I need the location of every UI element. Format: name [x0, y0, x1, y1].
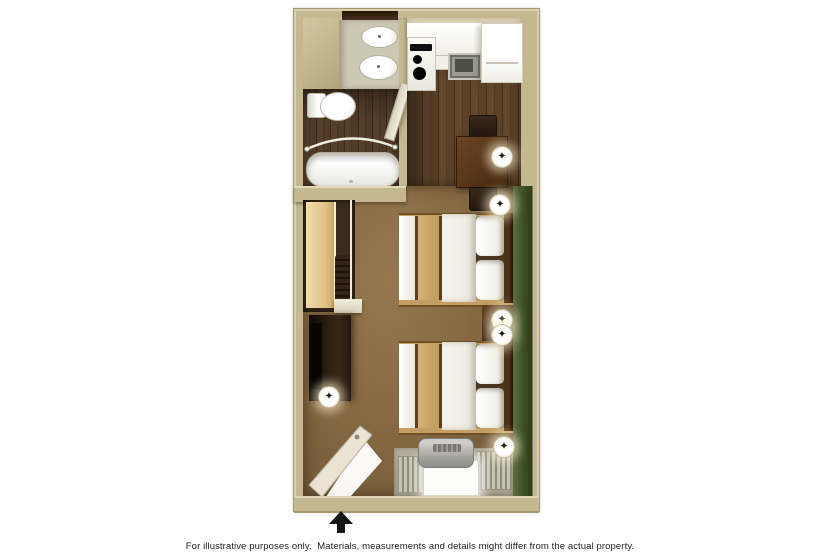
headboard [504, 341, 513, 431]
green-accent-wall [513, 186, 533, 497]
ceiling-light-icon: ✦ [318, 386, 340, 408]
shower-rod-icon [303, 125, 399, 155]
vanity-sink-icon [359, 55, 398, 80]
sink-basin [455, 59, 473, 72]
ptac-unit-icon [418, 438, 474, 468]
toilet-bowl-icon [320, 92, 356, 121]
vanity-sink-icon [361, 26, 398, 48]
stove-controls [410, 44, 432, 51]
pillow-icon [476, 344, 504, 384]
bed-2 [399, 341, 513, 431]
fridge-handle [486, 62, 518, 68]
headboard [504, 213, 513, 303]
closet-half-wall [334, 299, 362, 313]
dining-chair-icon [469, 115, 497, 138]
ceiling-light-icon: ✦ [489, 194, 511, 216]
disclaimer-text: For illustrative purposes only. Material… [0, 541, 820, 552]
interior-wall [399, 144, 407, 186]
light-glyph: ✦ [324, 391, 333, 402]
bed-1 [399, 213, 513, 303]
tub-drain-icon [349, 180, 353, 183]
folded-sheet [399, 216, 415, 300]
ceiling-light-icon: ✦ [493, 436, 515, 458]
closet-shelf [306, 202, 336, 308]
ptac-vent [433, 444, 461, 452]
faucet-icon [377, 65, 380, 68]
bed-blanket [418, 344, 439, 428]
entry-door-icon [302, 423, 394, 499]
light-glyph: ✦ [497, 329, 506, 340]
ceiling-light-icon: ✦ [491, 146, 513, 168]
stove-icon [407, 37, 436, 91]
light-glyph: ✦ [499, 441, 508, 452]
pillow-icon [476, 260, 504, 300]
pillow-icon [476, 388, 504, 428]
ceiling-light-icon: ✦ [491, 324, 513, 346]
kitchen-sink-icon [448, 53, 482, 80]
refrigerator-icon [481, 23, 523, 83]
pillows [476, 216, 504, 300]
bed-blanket [418, 216, 439, 300]
burner-icon [413, 67, 426, 80]
light-glyph: ✦ [497, 151, 506, 162]
faucet-icon [378, 35, 381, 38]
tv-icon [311, 323, 322, 389]
bed-duvet [442, 214, 476, 302]
interior-wall [399, 18, 407, 87]
folded-sheet [399, 344, 415, 428]
pillow-icon [476, 216, 504, 256]
bed-duvet [442, 342, 476, 430]
door-knob-icon [355, 435, 360, 440]
bathroom-wall [303, 18, 339, 89]
bathtub-icon [306, 152, 400, 187]
closet-rod [350, 200, 352, 310]
page: ✦ ✦ ✦ ✦ ✦ ✦ For illustrative purposes on… [0, 0, 820, 560]
light-glyph: ✦ [495, 199, 504, 210]
burner-icon [413, 55, 422, 64]
pillows [476, 344, 504, 428]
entrance-arrow-icon [328, 511, 354, 534]
floor-plan: ✦ ✦ ✦ ✦ ✦ ✦ [293, 8, 540, 512]
